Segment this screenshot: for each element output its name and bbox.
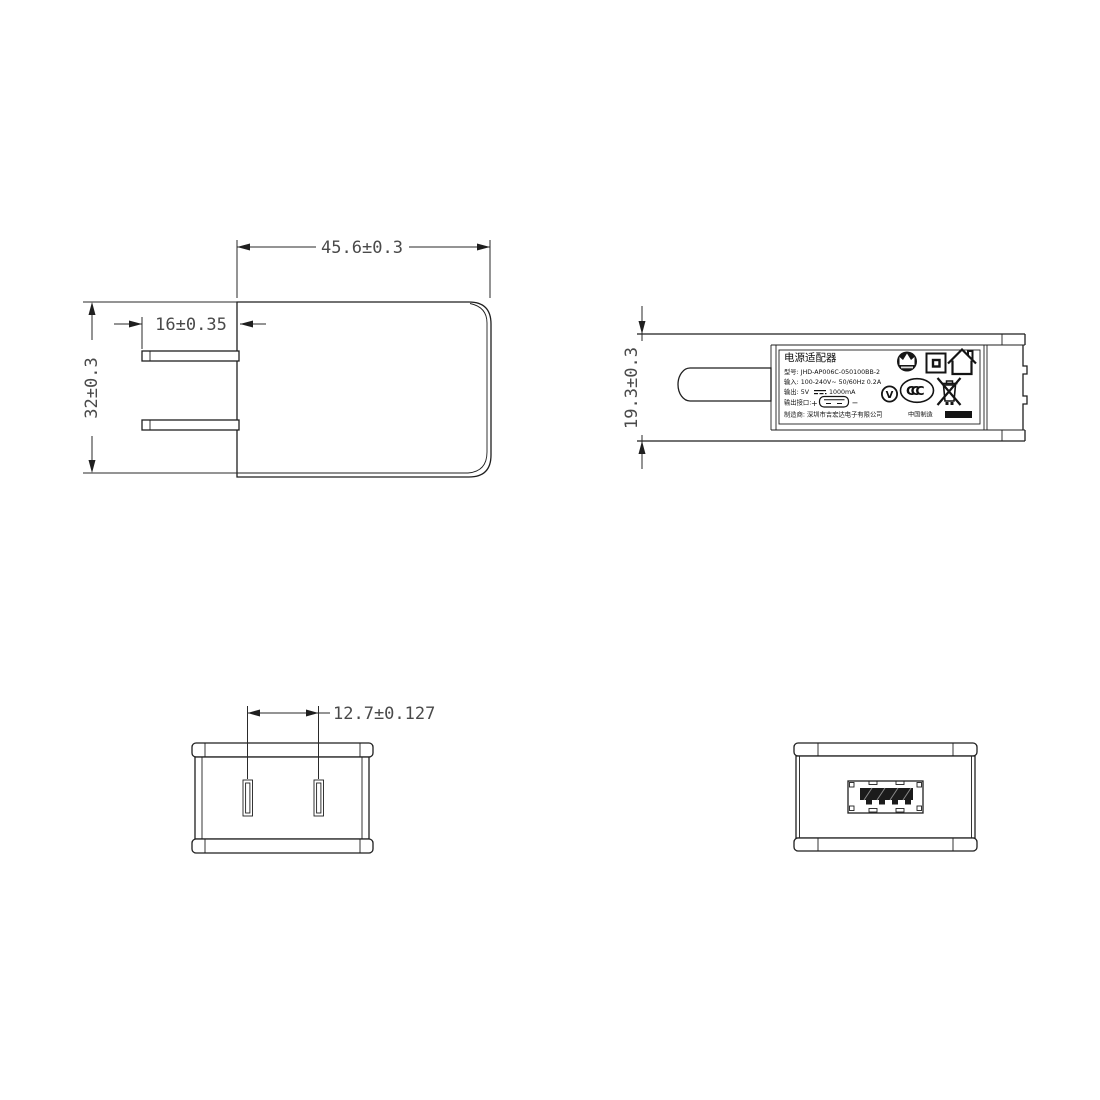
label-made-in: 中国制造: [908, 411, 933, 419]
brand-logo-icon: [897, 352, 917, 372]
plug-slot-left: [243, 780, 253, 816]
front-prong-bottom: [142, 420, 239, 430]
usb-a-port: [848, 781, 923, 813]
technical-drawing-canvas: 45.6±0.3 32±0.3 16±0.35: [0, 0, 1100, 1100]
side-view: 电源适配器 型号: JHD-AP006C-050100BB-2 输入: 100-…: [637, 334, 1027, 441]
label-output-suffix: 1000mA: [829, 389, 856, 396]
front-body-outline: [237, 302, 491, 477]
plug-face-bottom-cap: [192, 839, 373, 853]
adapter-drawing: 45.6±0.3 32±0.3 16±0.35: [0, 0, 1100, 1100]
svg-text:V: V: [886, 390, 894, 401]
dim-side-thickness-text: 19.3±0.3: [622, 347, 642, 429]
usb-pin: [905, 800, 911, 805]
front-prong-top: [142, 351, 239, 361]
label-port: 输出接口:: [784, 398, 811, 407]
label-manufacturer: 制造商: 深圳市吉宏达电子有限公司: [784, 410, 883, 419]
usb-end-top-cap: [794, 743, 977, 756]
usb-end-view: [794, 743, 977, 851]
side-right-edge: [1023, 345, 1027, 430]
plug-slot-right: [314, 780, 324, 816]
side-prong: [678, 368, 771, 401]
plug-face-top-cap: [192, 743, 373, 757]
usb-pin: [879, 800, 885, 805]
label-title: 电源适配器: [784, 351, 837, 364]
usb-end-bottom-cap: [794, 838, 977, 851]
dim-front-height-text: 32±0.3: [82, 357, 102, 418]
dimension-side-thickness: 19.3±0.3: [622, 306, 646, 469]
label-input-line: 输入: 100-240V~ 50/60Hz 0.2A: [784, 377, 882, 386]
dim-prong-pitch-text: 12.7±0.127: [333, 704, 435, 724]
usb-pin: [892, 800, 898, 805]
rating-label: 电源适配器 型号: JHD-AP006C-050100BB-2 输入: 100-…: [779, 350, 980, 425]
label-port-minus: −: [852, 399, 859, 408]
label-black-bar: [945, 411, 972, 418]
usb-pin: [866, 800, 872, 805]
dimension-front-width: 45.6±0.3: [237, 238, 490, 298]
label-output-prefix: 输出: 5V: [784, 387, 810, 396]
plug-face-body: [195, 757, 369, 839]
dim-front-width-text: 45.6±0.3: [321, 238, 403, 258]
dim-prong-length-text: 16±0.35: [155, 315, 227, 335]
plug-face-view: [192, 743, 373, 853]
label-port-plus: +: [811, 399, 818, 408]
label-model-line: 型号: JHD-AP006C-050100BB-2: [784, 367, 880, 376]
